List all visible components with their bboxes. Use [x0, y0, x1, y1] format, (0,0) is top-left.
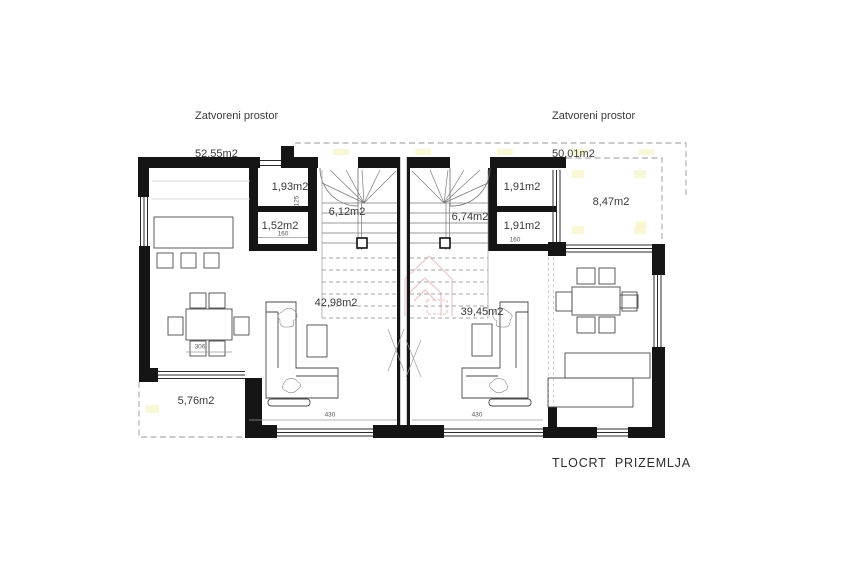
header-left-area: 52,55m2: [195, 148, 278, 161]
header-right: Zatvoreni prostor 50,01m2: [552, 85, 635, 185]
room-label-right-wc: 1,91m2: [504, 181, 541, 193]
room-label-right-hall: 6,74m2: [452, 211, 489, 223]
staircase-left: [322, 170, 397, 318]
room-label-right-storage: 1,91m2: [504, 220, 541, 232]
header-right-label: Zatvoreni prostor: [552, 110, 635, 123]
floor-plan-drawing: [0, 0, 850, 570]
dim-right-storage-width: 160: [510, 237, 521, 244]
dim-right-window: 430: [472, 412, 483, 419]
dim-left-table: 306: [195, 344, 206, 351]
dim-left-window: 430: [325, 412, 336, 419]
dim-left-wc-height: 125: [294, 196, 301, 207]
header-right-area: 50,01m2: [552, 148, 635, 161]
room-label-right-terrace: 8,47m2: [593, 196, 630, 208]
header-left-label: Zatvoreni prostor: [195, 110, 278, 123]
room-label-left-living: 42,98m2: [315, 297, 358, 309]
dining-table-right: [556, 268, 637, 333]
floor-plan-canvas: Zatvoreni prostor 52,55m2 Zatvoreni pros…: [0, 0, 850, 570]
windows: [141, 161, 662, 437]
wall-x-markers: [388, 329, 421, 377]
dining-table-left: [168, 293, 249, 356]
room-label-left-hall: 6,12m2: [329, 206, 366, 218]
plan-title: TLOCRT PRIZEMLJA: [552, 456, 691, 470]
kitchen-left: [152, 181, 250, 268]
room-label-right-living: 39,45m2: [461, 306, 504, 318]
staircase-right: [410, 170, 488, 318]
header-left: Zatvoreni prostor 52,55m2: [195, 85, 278, 185]
room-label-left-wc: 1,93m2: [272, 181, 309, 193]
dim-left-storage-width: 160: [278, 231, 289, 238]
house-logo-watermark: [405, 256, 452, 316]
sofa-left: [266, 302, 338, 406]
walls: [138, 146, 665, 438]
entry-doors: [320, 168, 490, 206]
room-label-left-terrace: 5,76m2: [178, 395, 215, 407]
kitchen-right: [548, 295, 650, 407]
